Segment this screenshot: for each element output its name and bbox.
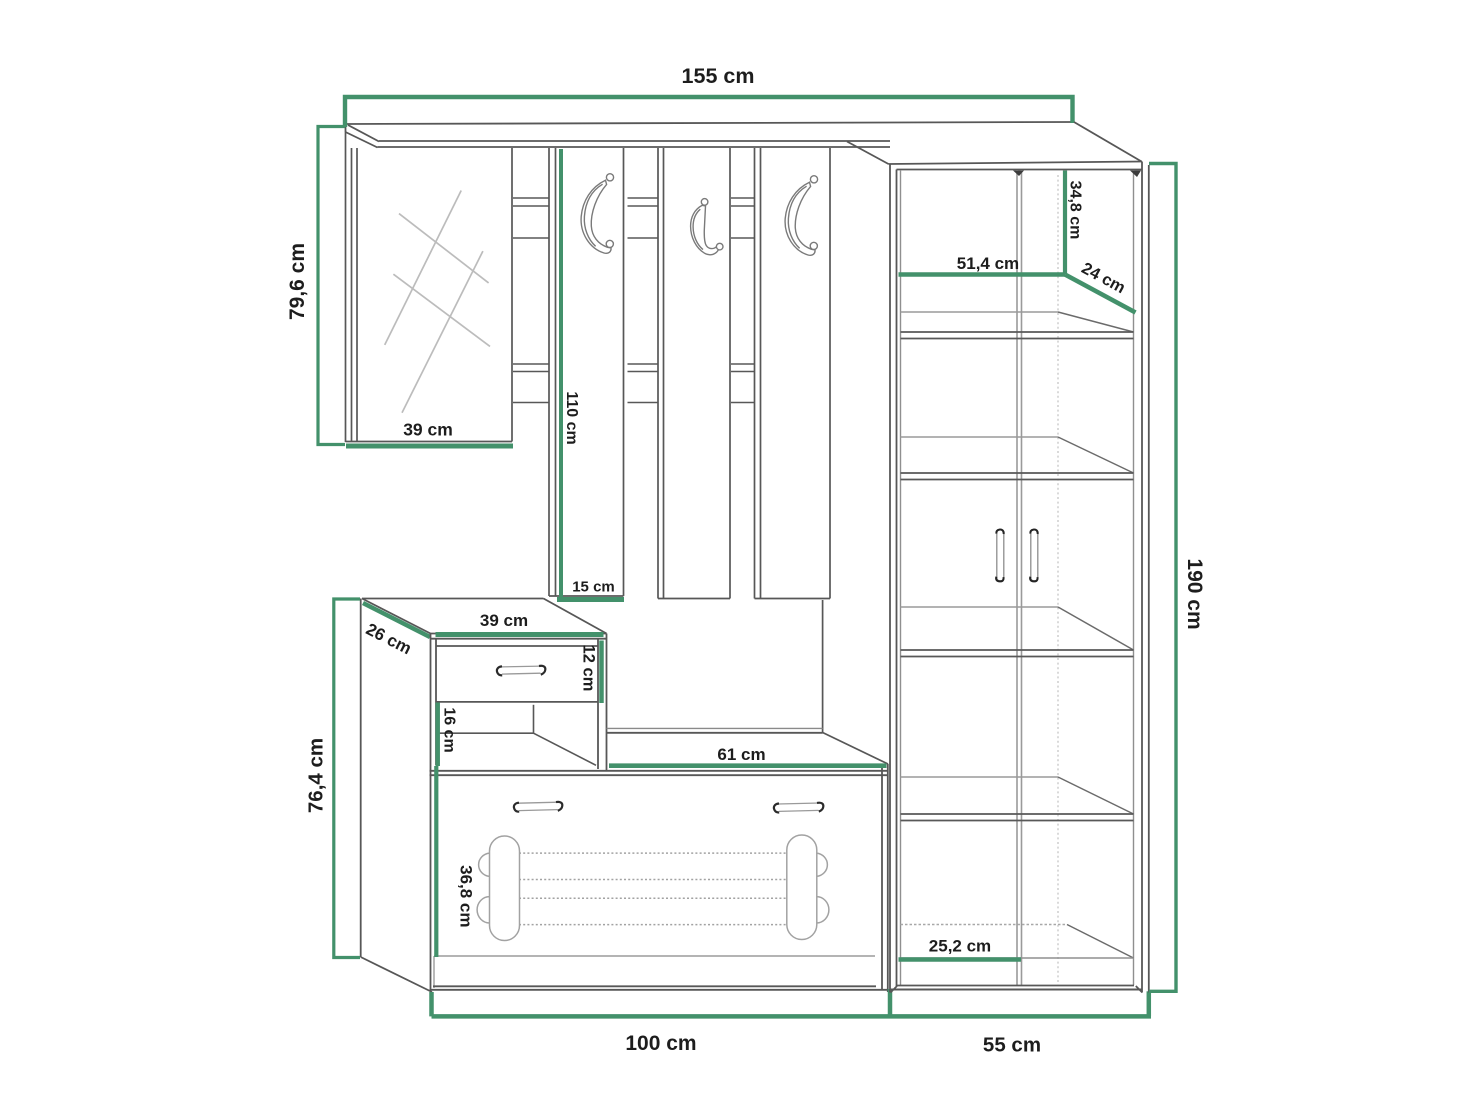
- svg-text:39 cm: 39 cm: [480, 611, 528, 630]
- svg-text:100 cm: 100 cm: [625, 1032, 696, 1055]
- svg-text:36,8 cm: 36,8 cm: [457, 865, 476, 927]
- svg-text:12 cm: 12 cm: [580, 645, 598, 692]
- svg-text:25,2 cm: 25,2 cm: [929, 937, 991, 956]
- svg-text:155 cm: 155 cm: [682, 64, 755, 88]
- svg-text:34,8 cm: 34,8 cm: [1067, 181, 1084, 240]
- svg-text:190 cm: 190 cm: [1183, 558, 1206, 629]
- svg-text:110 cm: 110 cm: [563, 391, 580, 444]
- svg-text:79,6 cm: 79,6 cm: [286, 243, 309, 320]
- svg-text:15 cm: 15 cm: [572, 579, 615, 596]
- svg-text:61 cm: 61 cm: [717, 745, 765, 764]
- svg-text:55 cm: 55 cm: [983, 1034, 1041, 1057]
- svg-text:76,4 cm: 76,4 cm: [305, 738, 328, 813]
- svg-text:51,4 cm: 51,4 cm: [957, 254, 1019, 273]
- svg-text:39 cm: 39 cm: [403, 420, 453, 440]
- svg-text:16 cm: 16 cm: [441, 707, 458, 752]
